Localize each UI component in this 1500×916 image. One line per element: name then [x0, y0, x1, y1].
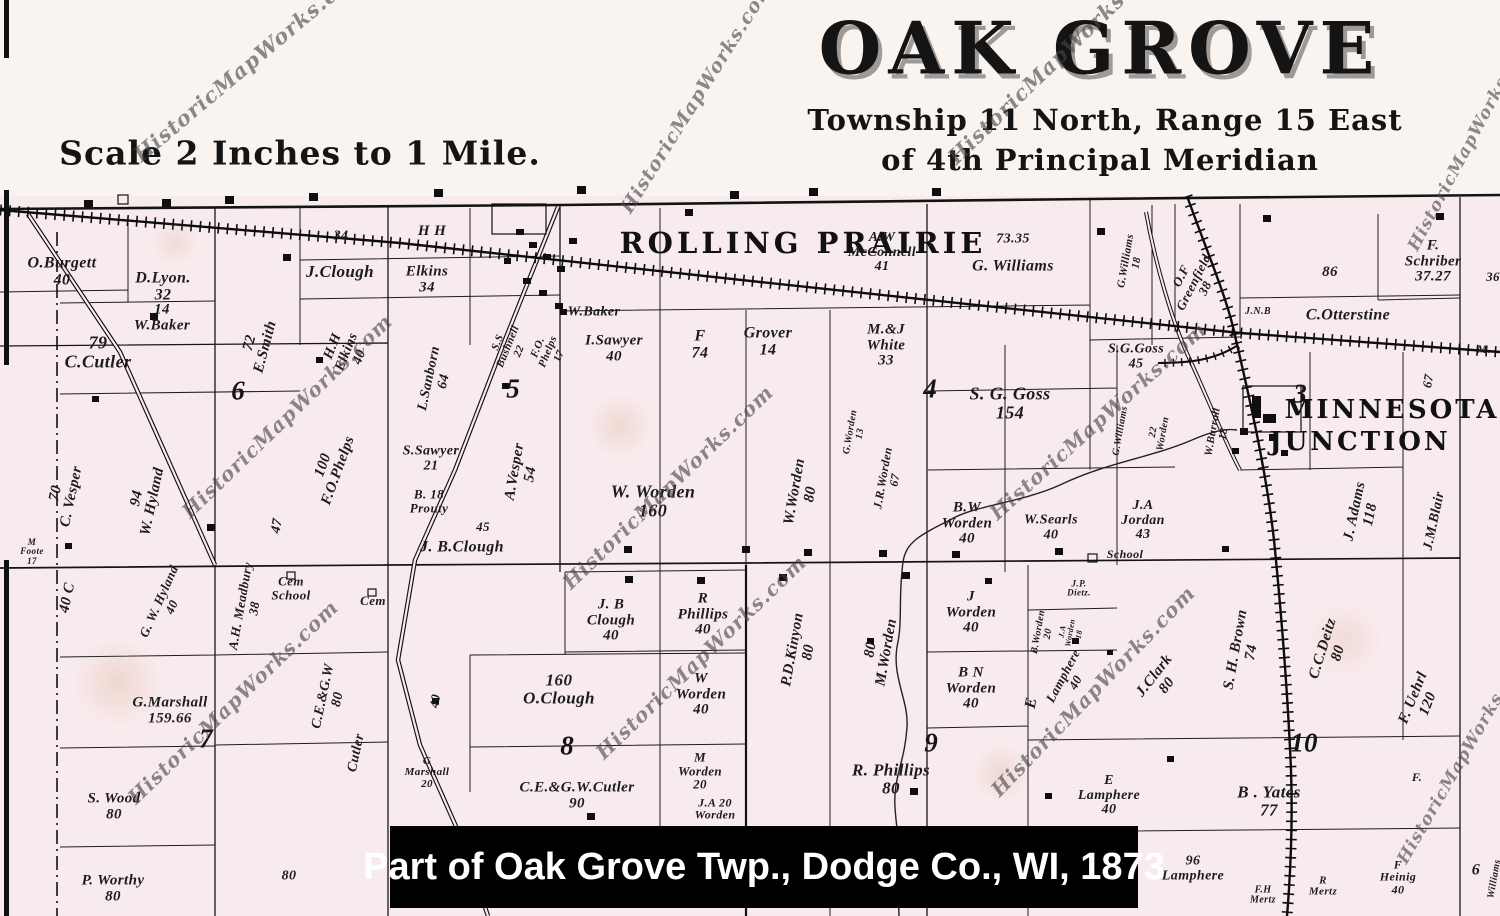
section-number: 6 [231, 376, 245, 407]
map-page: OAK GROVE Township 11 North, Range 15 Ea… [0, 0, 1500, 916]
section-number: 3 [1293, 379, 1307, 410]
watermark-text: HistoricMapWorks.com [558, 380, 778, 594]
watermark-text: HistoricMapWorks.com [1404, 30, 1500, 255]
watermark-text: HistoricMapWorks.com [943, 0, 1174, 169]
watermark-text: HistoricMapWorks.com [128, 0, 371, 167]
parcel-label: W.Worden 80 [782, 457, 824, 529]
labels-layer: O.Burgett 40D.Lyon. 3214 W.Baker79 C.Cut… [0, 0, 1500, 916]
parcel-label: G.Worden 13 [842, 409, 870, 457]
parcel-label: J.P. Dietz. [1067, 580, 1091, 599]
parcel-label: F. Uehrl 120 [1396, 670, 1445, 732]
parcel-label: J.M.Blair [1422, 490, 1449, 551]
parcel-label: F.O. Phelps 17 [527, 330, 571, 373]
parcel-label: G. Williams [972, 259, 1054, 276]
parcel-label: J.Clough [306, 263, 374, 281]
parcel-label: B . Yates 77 [1237, 783, 1301, 818]
parcel-label: J.R.Worden 67 [871, 446, 906, 512]
parcel-label: J.A Jordan 43 [1121, 499, 1165, 543]
parcel-label: A.H. Meadbury 38 [226, 561, 268, 653]
parcel-label: M.&J White 33 [867, 323, 906, 370]
parcel-label: J.A 20 Worden [695, 797, 736, 822]
parcel-label: Grover 14 [744, 325, 793, 358]
parcel-label: Cem School [271, 574, 310, 601]
parcel-label: H H [418, 224, 446, 240]
caption-text: Part of Oak Grove Twp., Dodge Co., WI, 1… [363, 846, 1165, 889]
parcel-label: J.A Worden 18 [1056, 617, 1085, 649]
parcel-label: School [1107, 548, 1143, 560]
parcel-label: 70 C. Vesper [42, 461, 85, 528]
parcel-label: B. 18 Prouty [410, 487, 449, 514]
parcel-label: 100 F.O.Phelps [304, 429, 358, 507]
parcel-label: Elkins 34 [406, 264, 448, 295]
parcel-label: C.E.&G.W 80 [310, 663, 352, 733]
parcel-label: J. B Clough 40 [587, 598, 635, 645]
parcel-label: Williams [1486, 859, 1500, 900]
parcel-label: W.Baker [568, 306, 621, 321]
parcel-label: M. [1477, 343, 1491, 355]
parcel-label: 36 [1486, 270, 1500, 284]
section-number: 9 [924, 728, 938, 759]
parcel-label: Cem [360, 594, 386, 608]
watermark-text: HistoricMapWorks.com [1393, 646, 1500, 867]
parcel-label: 94 W. Hyland [123, 463, 168, 537]
parcel-label: 34 [334, 230, 349, 245]
parcel-label: 45 [476, 520, 490, 534]
parcel-label: G. W. Hyland 40 [137, 563, 193, 645]
parcel-label: E Lamphere 40 [1078, 774, 1140, 818]
parcel-label: B.Worden 20 [1030, 609, 1058, 656]
parcel-label: J Worden 40 [946, 590, 996, 637]
parcel-label: A.W McConnell 41 [848, 231, 916, 275]
parcel-label: 40 C [57, 582, 79, 615]
section-number: 10 [1291, 728, 1318, 759]
parcel-label: G Marshall 20 [405, 756, 450, 790]
parcel-label: 22 Worden [1146, 414, 1172, 452]
watermark-text: HistoricMapWorks.com [616, 0, 778, 217]
section-number: 8 [560, 731, 574, 762]
parcel-label: J.Clark 80 [1134, 652, 1189, 710]
parcel-label: S.S Bushnell 22 [485, 320, 533, 374]
parcel-label: S. G. Goss 154 [969, 384, 1050, 421]
parcel-label: 160 O.Clough [523, 671, 595, 706]
parcel-label: F. [1412, 771, 1422, 783]
parcel-label: 72 E.Smith [236, 315, 280, 375]
parcel-label: J.N.B [1245, 307, 1271, 317]
parcel-label: Cutler [346, 732, 368, 773]
parcel-label: D.Lyon. 32 [135, 270, 191, 303]
parcel-label: L.Sanborn 64 [416, 345, 458, 415]
parcel-label: 47 [270, 517, 287, 534]
parcel-label: F 74 [692, 328, 709, 361]
parcel-label: F.H Mertz [1250, 886, 1276, 907]
parcel-label: 14 W.Baker [134, 302, 190, 333]
parcel-label: 40 [427, 693, 443, 709]
parcel-label: 73.35 [996, 233, 1030, 248]
parcel-label: M Foote 17 [20, 538, 44, 566]
parcel-label: 80 M.Worden [858, 615, 901, 688]
parcel-label: C.C.Deitz 80 [1307, 616, 1355, 685]
parcel-label: M Worden 20 [678, 751, 722, 792]
parcel-label: C.Otterstine [1306, 308, 1390, 325]
caption-bar: Part of Oak Grove Twp., Dodge Co., WI, 1… [390, 826, 1138, 908]
parcel-label: I.Sawyer 40 [585, 333, 643, 364]
parcel-label: R Mertz [1309, 876, 1337, 899]
parcel-label: S. H. Brown 74 [1222, 608, 1267, 693]
parcel-label: G.Williams 18 [1116, 233, 1148, 291]
parcel-label: 96 Lamphere [1162, 854, 1224, 883]
section-number: 4 [923, 374, 937, 405]
parcel-label: 79 C.Cutler [65, 333, 132, 370]
parcel-label: B N Worden 40 [946, 666, 996, 713]
section-number: 5 [506, 374, 520, 405]
parcel-label: E [1023, 696, 1041, 710]
parcel-label: O.Burgett 40 [28, 255, 97, 288]
parcel-label: 80 [282, 870, 297, 885]
parcel-label: 67 [1420, 373, 1436, 389]
parcel-label: W.Burrall 18 [1203, 407, 1234, 459]
parcel-label: 6 [1472, 863, 1480, 880]
parcel-label: J. B.Clough [420, 540, 504, 557]
parcel-label: P. Worthy 80 [82, 873, 145, 904]
watermark-text: HistoricMapWorks.com [177, 309, 397, 523]
parcel-label: R. Phillips 80 [852, 761, 930, 796]
parcel-label: 86 [1322, 265, 1338, 281]
watermark-text: HistoricMapWorks.com [591, 550, 811, 764]
parcel-label: W.Searls 40 [1024, 513, 1078, 542]
parcel-label: J. Adams 118 [1341, 480, 1384, 545]
parcel-label: O.F Greenfield 38 [1161, 246, 1225, 319]
parcel-label: C.E.&G.W.Cutler 90 [520, 780, 635, 811]
parcel-label: S.Sawyer 21 [403, 444, 460, 473]
parcel-label: A.Vesper 54 [503, 442, 544, 504]
parcel-label: P.D.Kinyon 80 [779, 612, 823, 691]
